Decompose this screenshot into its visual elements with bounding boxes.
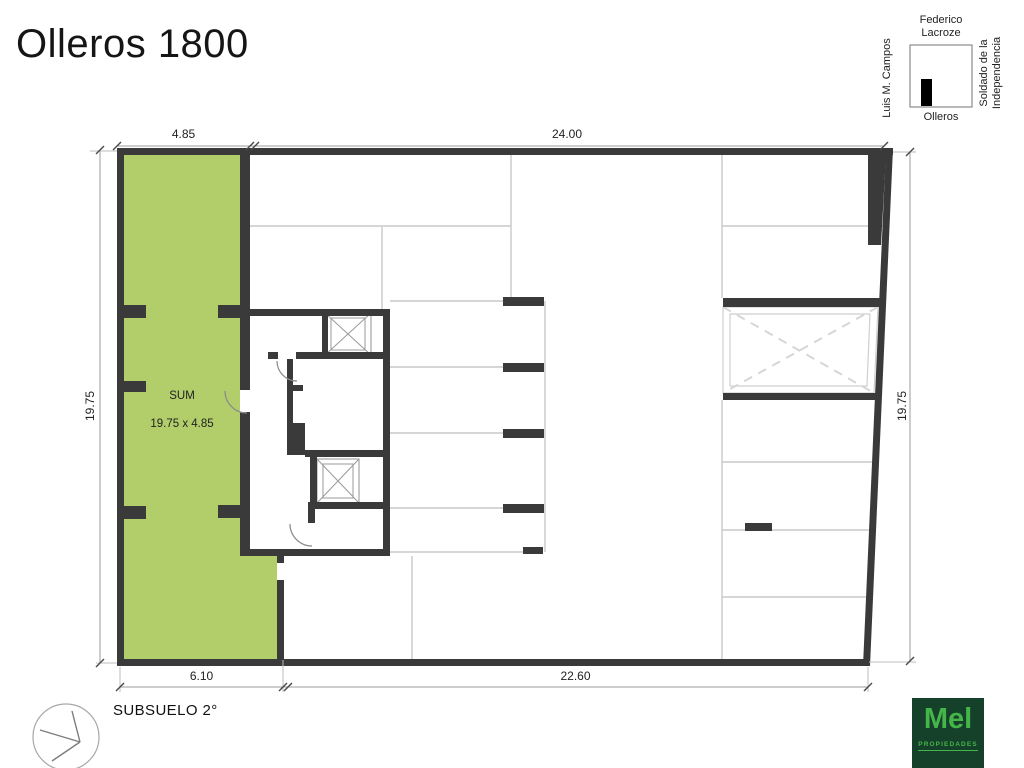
level-label: SUBSUELO 2° [113,702,218,719]
dimension-top: 24.00 [250,127,884,141]
agency-logo-tagline: PROPIEDADES [918,741,977,751]
street-olleros: Olleros [909,111,973,124]
street-soldado-independencia: Soldado de la Independencia [978,31,1004,115]
room-label: SUM 19.75 x 4.85 [124,389,240,431]
dimension-bottom-left: 6.10 [120,669,283,683]
location-marker [921,79,932,106]
room-dimensions: 19.75 x 4.85 [150,418,213,430]
north-arrow-icon [33,704,99,768]
dimension-right: 19.75 [895,376,909,436]
floor-plan-drawing [0,0,1024,768]
dimension-top-left: 4.85 [117,127,250,141]
elevator-shaft-icon [325,313,371,355]
room-name: SUM [169,390,195,402]
elevator-shaft-icon [317,459,359,503]
agency-logo-brand: Mel [912,705,984,733]
ramp-area [723,307,878,393]
street-luis-m-campos: Luis M. Campos [881,36,907,120]
parking-stall-lines [250,155,888,659]
dimension-left: 19.75 [83,376,97,436]
location-map-box [910,45,972,107]
dimension-bottom: 22.60 [283,669,868,683]
agency-logo: Mel PROPIEDADES [912,698,984,768]
page-title: Olleros 1800 [16,22,249,67]
street-federico-lacroze: Federico Lacroze [909,14,973,39]
